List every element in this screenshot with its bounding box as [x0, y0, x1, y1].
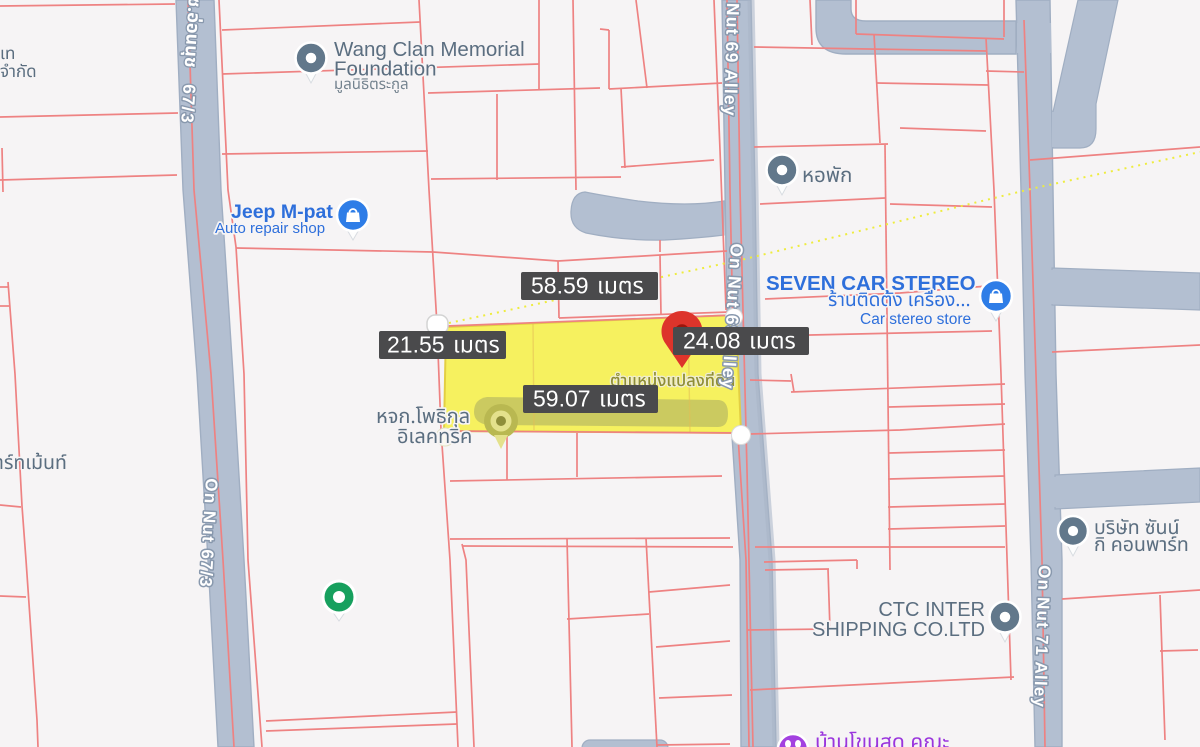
svg-text:58.59: 58.59: [531, 273, 589, 299]
svg-text:Auto repair shop: Auto repair shop: [215, 220, 325, 237]
svg-text:24.08: 24.08: [683, 328, 741, 354]
svg-text:Foundation: Foundation: [334, 58, 437, 81]
svg-text:On Nut 69 Alley: On Nut 69 Alley: [720, 0, 744, 117]
svg-text:67/3: 67/3: [177, 84, 199, 125]
svg-text:Car stereo store: Car stereo store: [860, 311, 971, 328]
svg-text:59.07: 59.07: [533, 386, 591, 412]
svg-text:SEVEN CAR STEREO: SEVEN CAR STEREO: [766, 272, 976, 295]
svg-text:21.55: 21.55: [387, 332, 445, 358]
svg-text:SHIPPING CO.LTD: SHIPPING CO.LTD: [812, 619, 985, 641]
svg-text:CTC INTER: CTC INTER: [878, 599, 985, 621]
